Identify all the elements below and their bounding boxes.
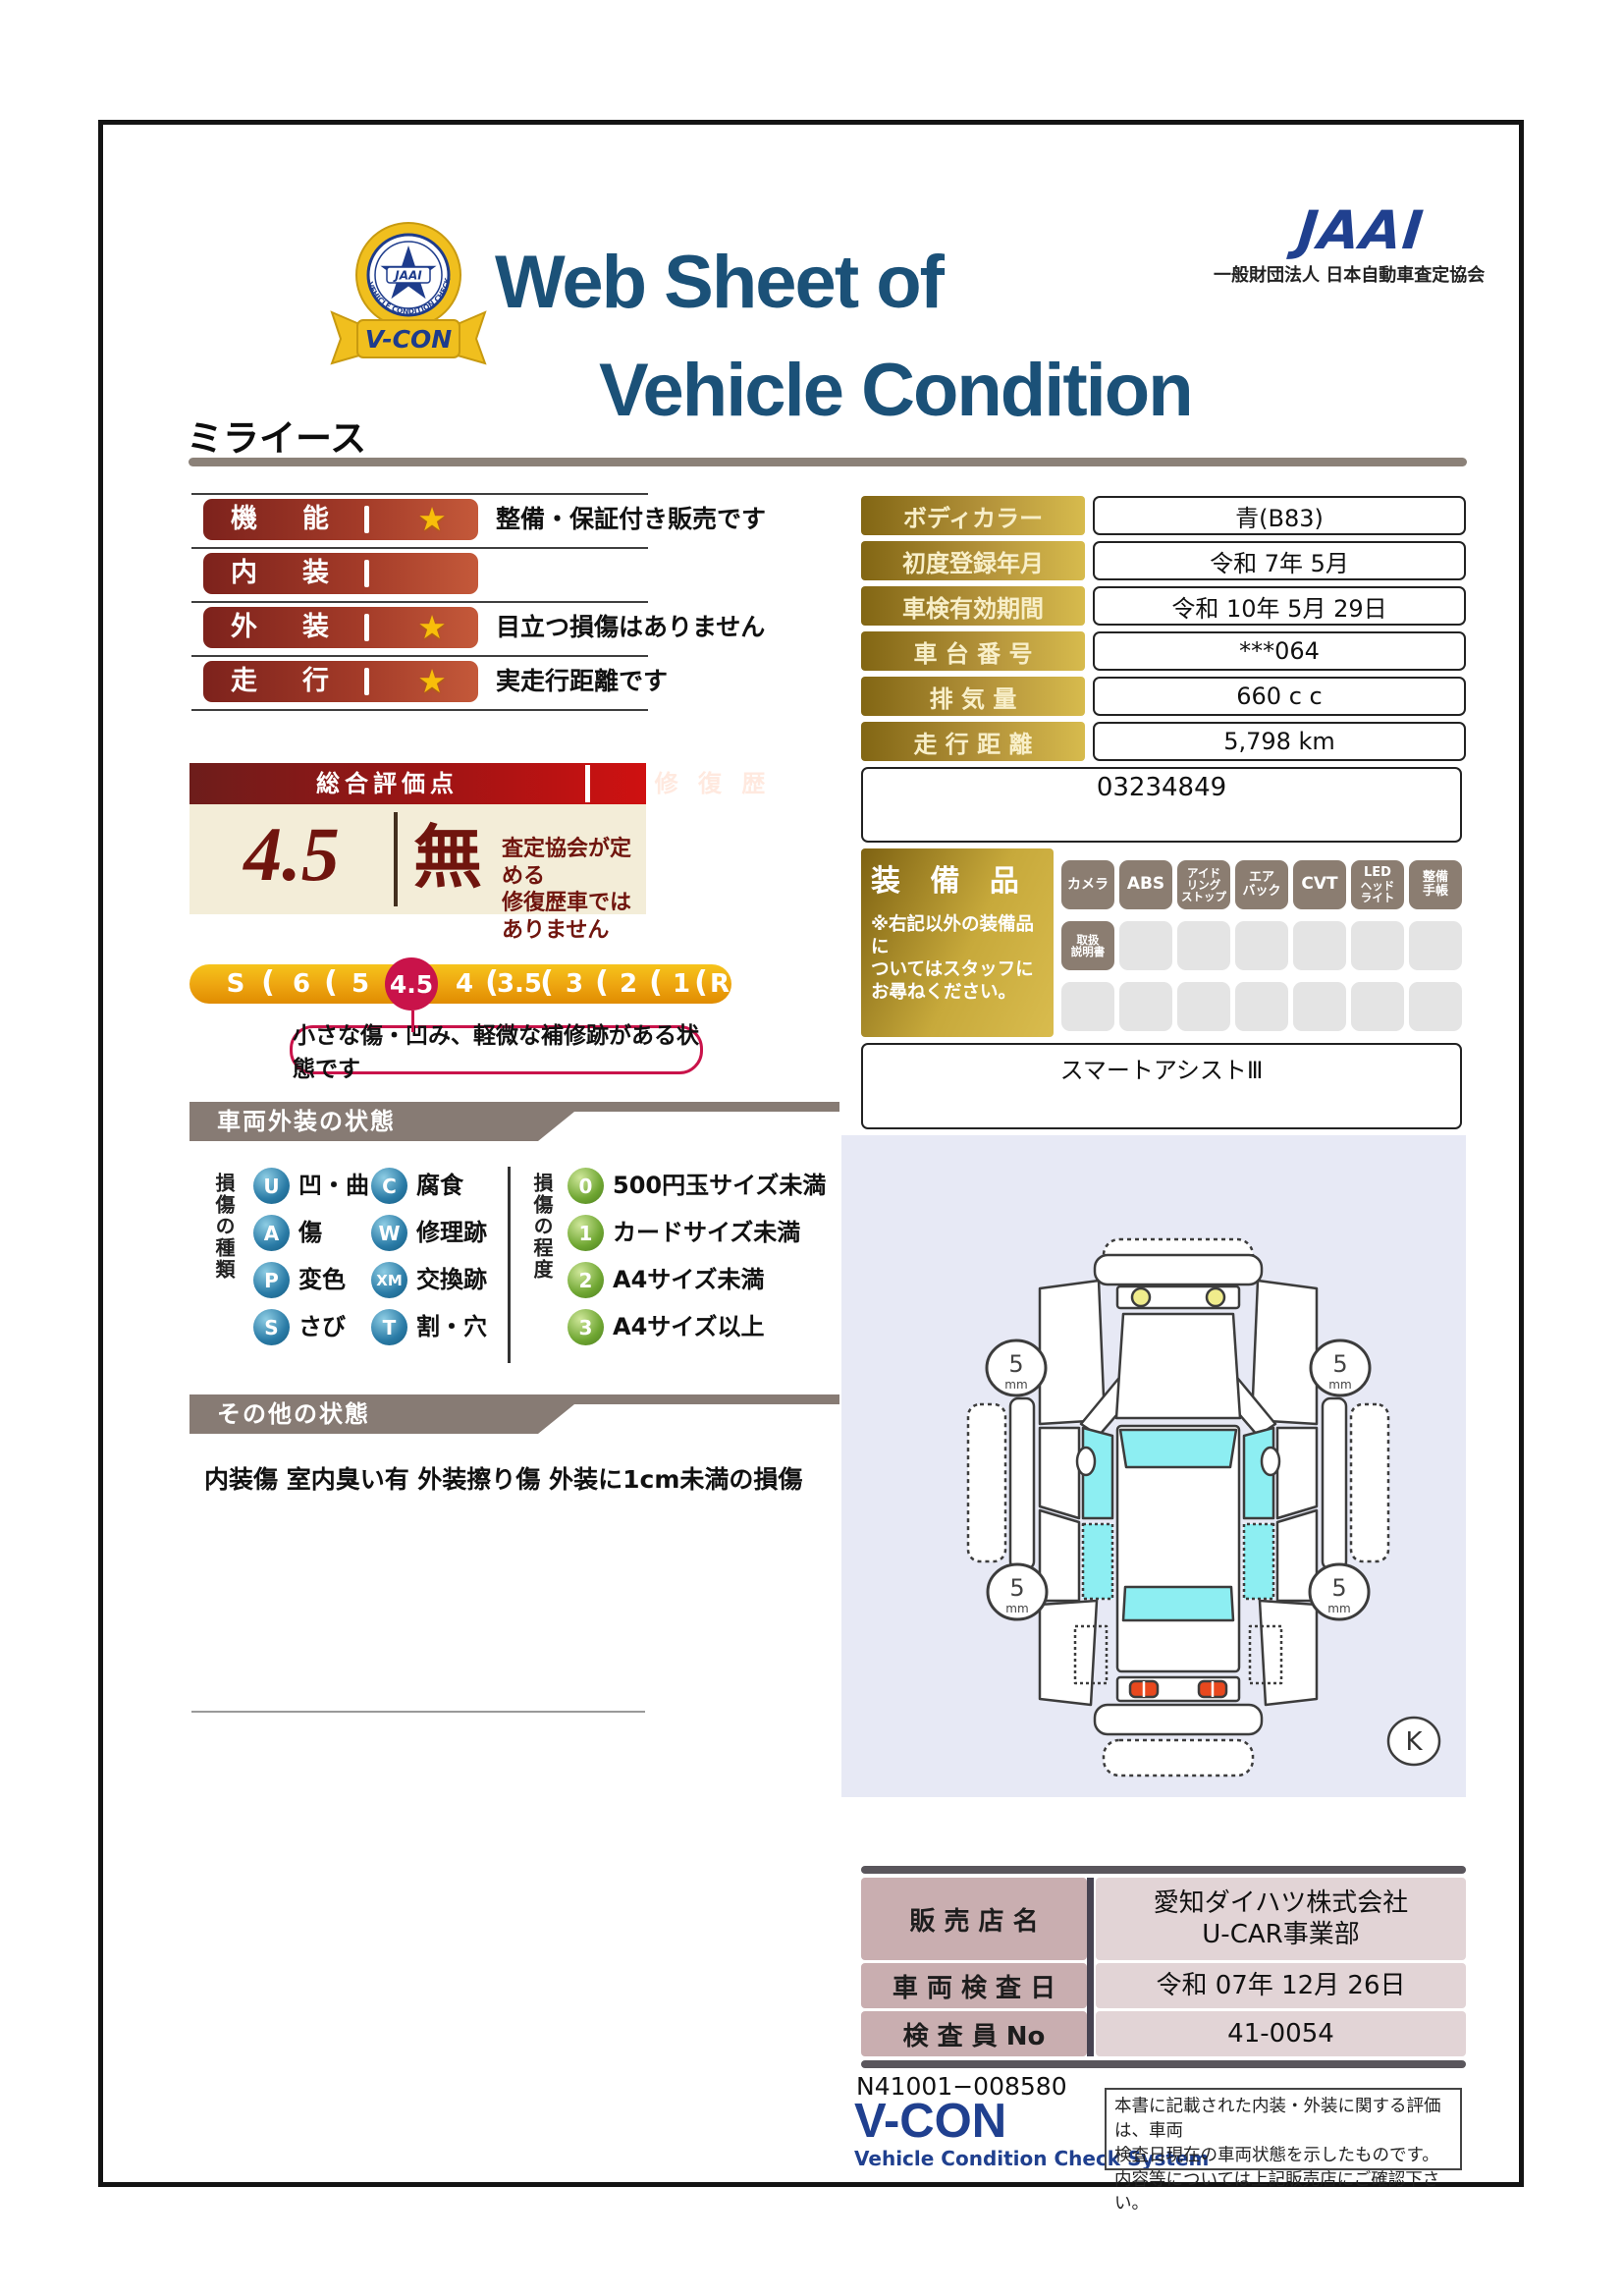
disclaimer-box: 本書に記載された内装・外装に関する評価は、車両 検査日現在の車両状態を示したもの… <box>1105 2088 1462 2170</box>
star-icon: ★ <box>398 607 466 648</box>
scale-separator: ( <box>595 964 609 1002</box>
rating-bar-function: 機能 ★ <box>203 499 478 540</box>
car-diagram: 5 mm 5 mm 5 mm 5 mm K <box>841 1135 1466 1797</box>
page-title-line2: Vehicle Condition <box>599 354 1192 428</box>
headlight-left-icon <box>1132 1288 1150 1306</box>
scale-grade: 4 <box>456 964 473 1004</box>
scale-grade: R <box>710 964 730 1004</box>
svg-text:mm: mm <box>1328 1378 1351 1392</box>
damage-type-icon-c: C <box>371 1168 407 1204</box>
selected-grade-badge: 4.5 <box>385 957 438 1011</box>
dealer-label: 検 査 員 No <box>861 2011 1087 2056</box>
star-icon: ★ <box>398 661 466 702</box>
damage-types-title: 損傷の種類 <box>210 1173 239 1281</box>
body-divider <box>394 812 398 906</box>
info-label: 車検有効期間 <box>861 586 1085 626</box>
overall-score-body: 4.5 無 査定協会が定める 修復歴車ではありません <box>189 804 646 914</box>
repair-history-note: 査定協会が定める 修復歴車ではありません <box>502 836 646 944</box>
damage-type-label: 変色 <box>298 1262 346 1298</box>
equipment-badge-empty <box>1119 921 1172 970</box>
equipment-badge-empty <box>1177 982 1230 1031</box>
info-value: 660 c c <box>1093 677 1466 716</box>
bar-divider <box>364 506 369 533</box>
svg-text:5: 5 <box>1008 1350 1023 1378</box>
page-title-line1: Web Sheet of <box>495 246 943 320</box>
info-row-displacement: 排 気 量 660 c c <box>861 677 1466 716</box>
scale-grade: 5 <box>352 964 369 1004</box>
scale-separator: ( <box>261 964 275 1002</box>
scale-grade: 3.5 <box>497 964 542 1004</box>
equipment-panel: 装 備 品 ※右記以外の装備品に ついてはスタッフに お尋ねください。 カメラ … <box>861 848 1466 1037</box>
info-value: 青(B83) <box>1093 496 1466 535</box>
equipment-badge-empty <box>1409 921 1462 970</box>
damage-type-icon-p: P <box>253 1262 290 1298</box>
scale-separator: ( <box>324 964 338 1002</box>
vehicle-name: ミライース <box>187 409 366 462</box>
rating-separator <box>191 547 648 549</box>
equipment-badge-empty <box>1351 982 1404 1031</box>
table-top-bar <box>861 1866 1466 1874</box>
damage-degree-label: A4サイズ未満 <box>613 1262 765 1298</box>
info-row-first-registration: 初度登録年月 令和 7年 5月 <box>861 541 1466 580</box>
info-row-chassis-number: 車 台 番 号 ***064 <box>861 631 1466 671</box>
damage-degree-icon-1: 1 <box>568 1215 604 1251</box>
rating-separator <box>191 493 648 495</box>
equipment-title-cell: 装 備 品 ※右記以外の装備品に ついてはスタッフに お尋ねください。 <box>861 848 1054 1037</box>
bar-divider <box>364 668 369 695</box>
damage-degree-icon-3: 3 <box>568 1309 604 1345</box>
equipment-badge-empty <box>1293 982 1346 1031</box>
equipment-badge-camera: カメラ <box>1061 860 1114 909</box>
info-row-mileage: 走 行 距 離 5,798 km <box>861 722 1466 761</box>
damage-type-label: さび <box>298 1309 346 1345</box>
legend-divider <box>508 1167 511 1363</box>
rating-bar-exterior: 外装 ★ <box>203 607 478 648</box>
rating-bar-interior: 内装 <box>203 553 478 594</box>
info-label: 排 気 量 <box>861 677 1085 716</box>
equipment-badge-empty <box>1235 982 1288 1031</box>
scale-grade: 2 <box>620 964 637 1004</box>
scale-grade: S <box>227 964 245 1004</box>
star-icon: ★ <box>398 499 466 540</box>
vcon-logo: V-CON <box>854 2098 1006 2146</box>
info-label: ボディカラー <box>861 496 1085 535</box>
rating-label: 機能 <box>231 499 374 540</box>
dealer-row-shop-name: 販 売 店 名 愛知ダイハツ株式会社 U-CAR事業部 <box>861 1878 1466 1960</box>
jaai-organization-name: 一般財団法人 日本自動車査定協会 <box>1214 261 1485 287</box>
damage-type-icon-w: W <box>371 1215 407 1251</box>
info-value: ***064 <box>1093 631 1466 671</box>
equipment-badge-empty <box>1119 982 1172 1031</box>
equipment-badge-led-headlight: LED ヘッド ライト <box>1351 860 1404 909</box>
damage-type-label: 腐食 <box>416 1168 463 1204</box>
rating-bar-mileage: 走行 ★ <box>203 661 478 702</box>
info-row-body-color: ボディカラー 青(B83) <box>861 496 1466 535</box>
dealer-value: 令和 07年 12月 26日 <box>1096 1963 1466 2008</box>
dealer-label: 車 両 検 査 日 <box>861 1963 1087 2008</box>
damage-type-label: 凹・曲 <box>298 1168 369 1204</box>
damage-type-label: 交換跡 <box>416 1262 487 1298</box>
notes-separator <box>191 1711 645 1713</box>
score-scale-bar: S ( 6 ( 5 4.5 4 ( 3.5 ( 3 ( 2 ( 1 ( R <box>189 964 731 1004</box>
vehicle-condition-sheet: JAAI VEHICLE CONDITION CHECK SYSTEM V-CO… <box>0 0 1623 2296</box>
svg-text:K: K <box>1405 1727 1423 1757</box>
scale-separator: ( <box>540 964 554 1002</box>
equipment-badge-owners-manual: 取扱 説明書 <box>1061 921 1114 970</box>
dealer-value: 41-0054 <box>1096 2011 1466 2056</box>
vcon-emblem-logo: JAAI VEHICLE CONDITION CHECK SYSTEM V-CO… <box>324 214 493 379</box>
equipment-badge-idling-stop: アイド リング ストップ <box>1177 860 1230 909</box>
info-value: 令和 10年 5月 29日 <box>1093 586 1466 626</box>
svg-text:5: 5 <box>1332 1350 1347 1378</box>
equipment-badge-cvt: CVT <box>1293 860 1346 909</box>
rating-separator <box>191 655 648 657</box>
equipment-badge-airbag: エア バック <box>1235 860 1288 909</box>
info-label: 初度登録年月 <box>861 541 1085 580</box>
rating-label: 外装 <box>231 607 374 648</box>
damage-type-label: 傷 <box>298 1215 322 1251</box>
damage-type-label: 修理跡 <box>416 1215 487 1251</box>
equipment-badge-empty <box>1409 982 1462 1031</box>
header-divider <box>189 458 1467 466</box>
rating-separator <box>191 709 648 711</box>
grade-description-callout: 小さな傷・凹み、軽微な補修跡がある状態です <box>290 1025 703 1074</box>
svg-text:mm: mm <box>1005 1602 1028 1615</box>
equipment-badge-empty <box>1061 982 1114 1031</box>
scale-separator: ( <box>649 964 663 1002</box>
damage-degree-icon-0: 0 <box>568 1168 604 1204</box>
info-label: 車 台 番 号 <box>861 631 1085 671</box>
damage-type-icon-t: T <box>371 1309 407 1345</box>
scale-grade: 6 <box>293 964 310 1004</box>
info-value: 5,798 km <box>1093 722 1466 761</box>
equipment-badge-abs: ABS <box>1119 860 1172 909</box>
damage-degree-icon-2: 2 <box>568 1262 604 1298</box>
scale-grade: 1 <box>673 964 690 1004</box>
reference-number-box: 03234849 <box>861 767 1462 843</box>
damage-type-label: 割・穴 <box>416 1309 487 1345</box>
scale-separator: ( <box>694 964 708 1002</box>
equipment-badge-empty <box>1293 921 1346 970</box>
rating-note: 整備・保証付き販売です <box>496 499 849 540</box>
rating-note: 実走行距離です <box>496 661 849 702</box>
damage-type-icon-a: A <box>253 1215 290 1251</box>
damage-degree-label: A4サイズ以上 <box>613 1309 765 1345</box>
bar-divider <box>364 614 369 641</box>
bar-divider <box>364 560 369 587</box>
emblem-center-text: JAAI <box>393 269 422 283</box>
info-row-inspection-validity: 車検有効期間 令和 10年 5月 29日 <box>861 586 1466 626</box>
svg-text:5: 5 <box>1331 1574 1346 1602</box>
other-condition-text: 内装傷 室内臭い有 外装擦り傷 外装に1cm未満の損傷 <box>204 1460 802 1496</box>
damage-degree-label: 500円玉サイズ未満 <box>613 1168 826 1204</box>
equipment-note: ※右記以外の装備品に ついてはスタッフに お尋ねください。 <box>871 913 1044 1005</box>
info-label: 走 行 距 離 <box>861 722 1085 761</box>
damage-type-icon-s: S <box>253 1309 290 1345</box>
equipment-title: 装 備 品 <box>871 856 1044 900</box>
smart-assist-box: スマートアシストⅢ <box>861 1043 1462 1129</box>
equipment-badge-empty <box>1351 921 1404 970</box>
table-bottom-bar <box>861 2060 1466 2068</box>
damage-degree-label: カードサイズ未満 <box>613 1215 800 1251</box>
headlight-right-icon <box>1207 1288 1224 1306</box>
overall-score-value: 4.5 <box>189 810 394 899</box>
overall-score-title: 総合評価点 <box>189 763 585 804</box>
emblem-banner-text: V-CON <box>365 325 453 354</box>
scale-grade: 3 <box>566 964 583 1004</box>
rating-separator <box>191 601 648 603</box>
overall-score-header: 総合評価点 修 復 歴 <box>189 763 646 804</box>
rating-label: 内装 <box>231 553 374 594</box>
damage-type-icon-u: U <box>253 1168 290 1204</box>
equipment-badge-empty <box>1235 921 1288 970</box>
dealer-row-inspector-no: 検 査 員 No 41-0054 <box>861 2011 1466 2056</box>
jaai-logo: JAAI <box>1295 204 1426 257</box>
car-diagram-panel: 5 mm 5 mm 5 mm 5 mm K <box>841 1135 1466 1797</box>
repair-history-value: 無 <box>413 812 482 902</box>
rating-note: 目立つ損傷はありません <box>496 607 849 648</box>
dealer-label: 販 売 店 名 <box>861 1878 1087 1960</box>
dealer-row-inspection-date: 車 両 検 査 日 令和 07年 12月 26日 <box>861 1963 1466 2008</box>
rating-label: 走行 <box>231 661 374 702</box>
equipment-badge-maintenance-book: 整備 手帳 <box>1409 860 1462 909</box>
damage-degrees-title: 損傷の程度 <box>528 1173 557 1281</box>
table-vertical-divider <box>1087 1878 1094 2056</box>
svg-text:mm: mm <box>1327 1602 1350 1615</box>
svg-text:5: 5 <box>1009 1574 1024 1602</box>
equipment-badge-empty <box>1177 921 1230 970</box>
svg-text:mm: mm <box>1004 1378 1027 1392</box>
info-value: 令和 7年 5月 <box>1093 541 1466 580</box>
repair-history-title: 修 復 歴 <box>590 763 836 804</box>
damage-type-icon-xm: XM <box>371 1262 407 1298</box>
dealer-value: 愛知ダイハツ株式会社 U-CAR事業部 <box>1096 1878 1466 1960</box>
